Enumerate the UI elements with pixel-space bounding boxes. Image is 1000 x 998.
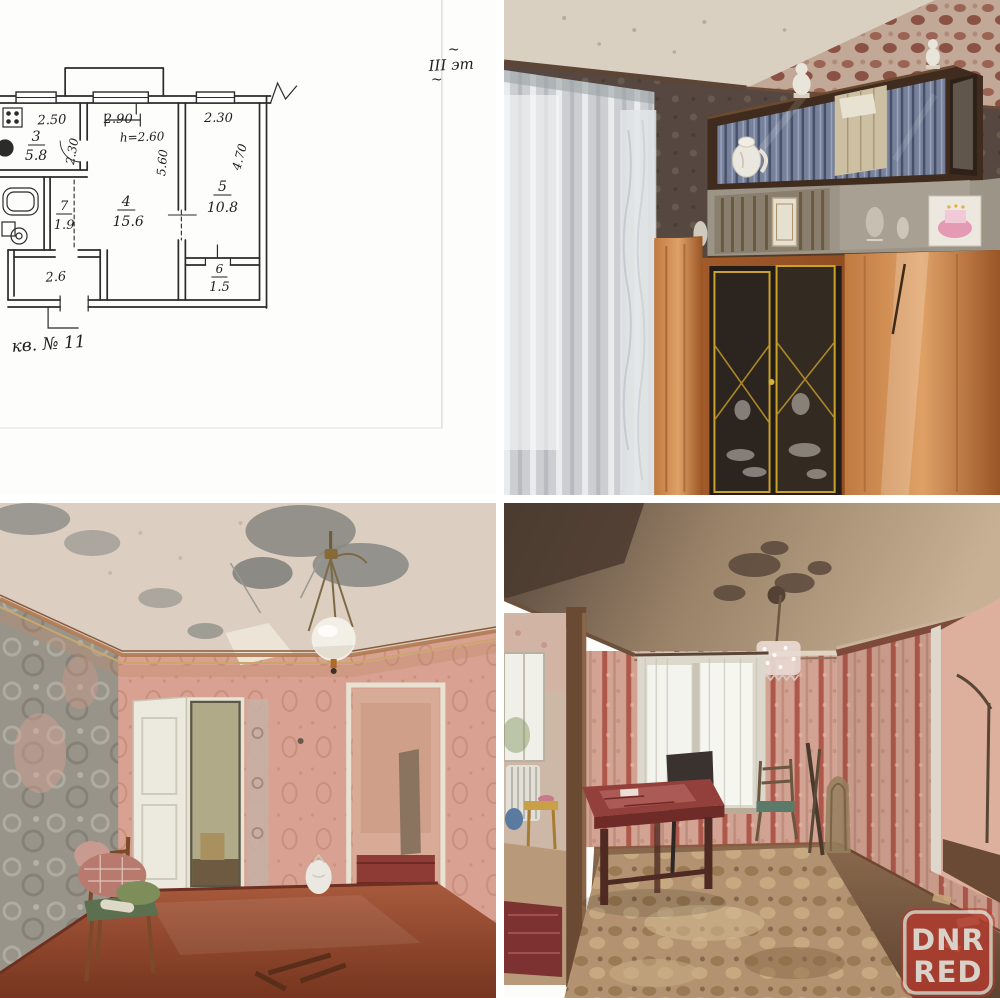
room-beyond-doorway: [361, 703, 431, 833]
wood-side-panel: [654, 238, 702, 495]
room-number-bedroom: 5: [218, 179, 227, 195]
watermark-line2: RED: [913, 955, 982, 989]
kitchen-rug: [504, 901, 562, 977]
dim-bedroom-depth: 4.70: [229, 142, 250, 173]
leaning-board: [399, 749, 421, 855]
chair-seat: [757, 801, 795, 812]
watermark-line1: DNR: [911, 923, 985, 957]
tile-photo-doors-room: [0, 503, 496, 998]
dnr-red-watermark: DNR RED: [902, 909, 994, 996]
crystal-glass: [897, 217, 909, 239]
leaning-frame: [825, 776, 851, 853]
floor-note-tilde-bottom: ~: [431, 72, 443, 88]
room-number-kitchen: 3: [32, 129, 41, 145]
area-bath: 1.9: [54, 218, 75, 233]
area-living: 15.6: [113, 214, 144, 230]
floor-plan-drawing: 2.50 3 5.8 2.30 2.90 h=2.60 5.60 2.30 4.…: [0, 0, 496, 495]
blue-bucket: [505, 808, 523, 830]
yellow-stool: [524, 801, 558, 810]
photo-collage: 2.50 3 5.8 2.30 2.90 h=2.60 5.60 2.30 4.…: [0, 0, 1000, 998]
paper-on-table: [620, 789, 638, 797]
photo-cabinet-room: [504, 0, 1000, 495]
right-doorway: [931, 598, 1000, 903]
sink-symbol: [0, 140, 13, 156]
plan-labels: 2.50 3 5.8 2.30 2.90 h=2.60 5.60 2.30 4.…: [11, 42, 474, 357]
cardboard-box: [200, 833, 224, 860]
tile-floor-plan: 2.50 3 5.8 2.30 2.90 h=2.60 5.60 2.30 4.…: [0, 0, 496, 495]
apartment-number-note: кв. № 11: [11, 332, 86, 357]
room-number-living: 4: [121, 194, 131, 210]
window-curtain: [504, 70, 656, 495]
area-bedroom: 10.8: [207, 200, 238, 216]
photo-doors-room: [0, 503, 496, 998]
crystal-vase: [866, 207, 884, 237]
sideboard-lower: [654, 236, 1000, 495]
photo-dining-room: DNR RED: [504, 503, 1000, 998]
ceiling-height-note: h=2.60: [120, 129, 165, 145]
dim-bedroom-width: 2.30: [203, 111, 233, 126]
stove-symbol: [3, 108, 22, 127]
area-hallway: 2.6: [44, 269, 67, 285]
dim-living-depth: 5.60: [154, 148, 170, 176]
doorway-casing: [931, 625, 941, 875]
curtain-rod: [634, 653, 768, 655]
tile-photo-cabinet-room: [504, 0, 1000, 495]
wrapped-item: [953, 78, 973, 170]
kitchen-doorway-view: [504, 613, 566, 985]
wall-switch: [298, 738, 304, 744]
tile-photo-dining-room: DNR RED: [504, 503, 1000, 998]
room-number-bath: 7: [60, 199, 69, 214]
sideboard-display: [693, 178, 1000, 258]
dim-kitchen-width: 2.50: [36, 113, 66, 129]
room-number-storage: 6: [216, 262, 224, 276]
area-storage: 1.5: [209, 280, 230, 295]
open-white-door: [133, 697, 242, 901]
right-doorway: [349, 685, 443, 895]
window-glow: [504, 95, 559, 450]
dim-living-width: 2.90: [103, 112, 133, 127]
door-knob: [769, 379, 775, 385]
area-kitchen: 5.8: [25, 148, 47, 164]
